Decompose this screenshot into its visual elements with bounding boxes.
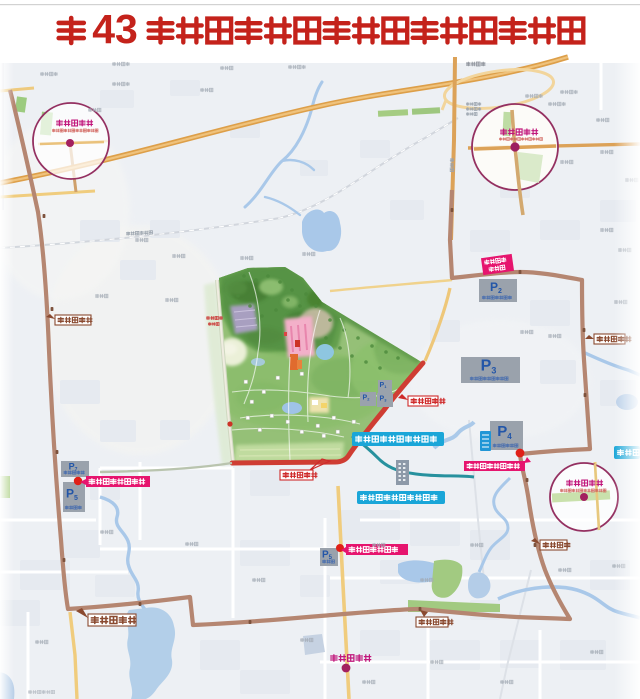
svg-text:43: 43 bbox=[92, 6, 138, 52]
